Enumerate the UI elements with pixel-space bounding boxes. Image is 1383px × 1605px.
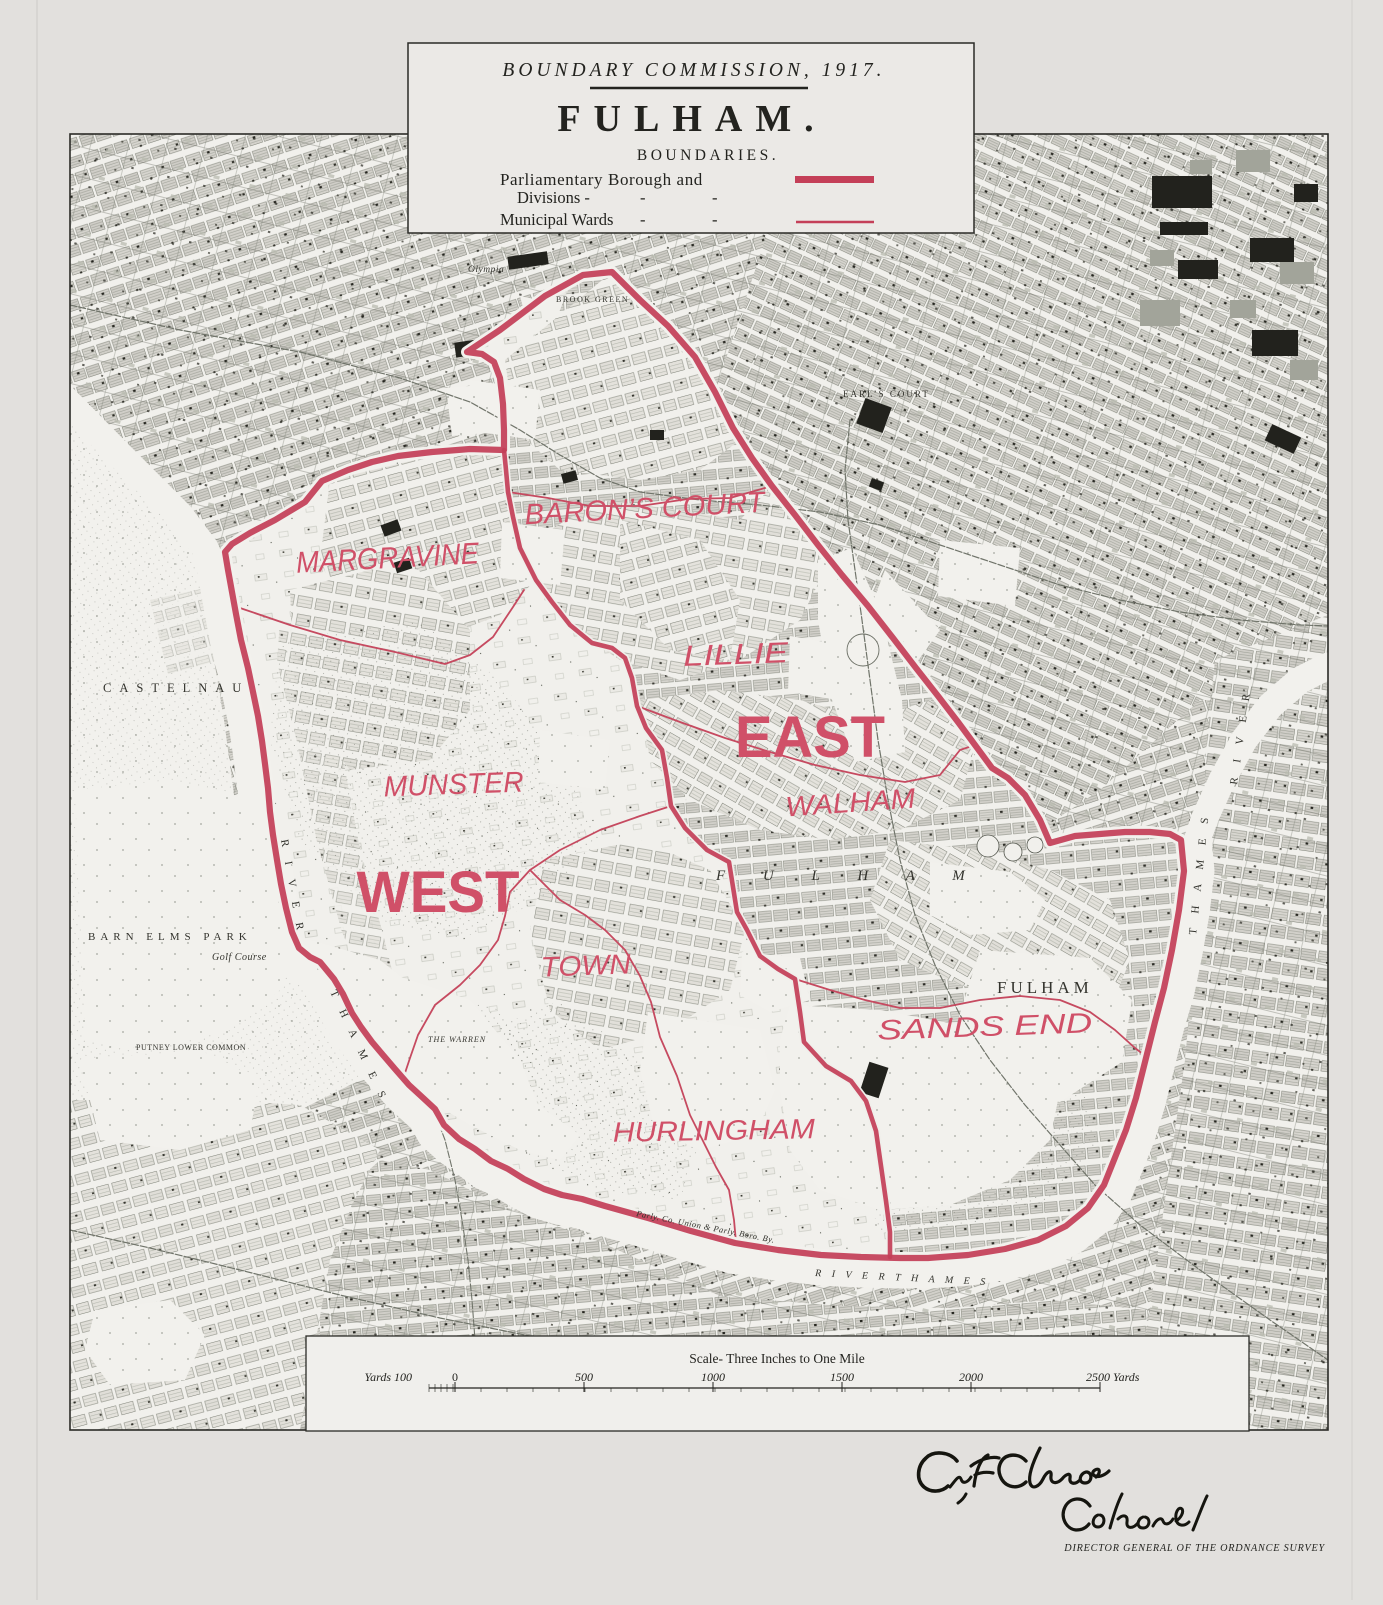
svg-text:BROOK GREEN: BROOK GREEN: [556, 295, 629, 304]
svg-text:BOUNDARY COMMISSION, 1917.: BOUNDARY COMMISSION, 1917.: [502, 60, 885, 81]
svg-text:Municipal Wards: Municipal Wards: [500, 210, 613, 229]
svg-text:DIRECTOR GENERAL OF THE ORDNAN: DIRECTOR GENERAL OF THE ORDNANCE SURVEY: [1063, 1543, 1325, 1554]
svg-text:EAST: EAST: [735, 705, 885, 770]
svg-text:0: 0: [452, 1370, 458, 1384]
svg-text:Yards 100: Yards 100: [365, 1370, 412, 1384]
svg-text:MUNSTER: MUNSTER: [383, 767, 524, 804]
svg-text:Scale- Three Inches to One Mil: Scale- Three Inches to One Mile: [689, 1351, 865, 1366]
svg-text:Olympia: Olympia: [468, 265, 504, 275]
svg-text:500: 500: [575, 1370, 593, 1384]
svg-text:F U L H A M: F U L H A M: [715, 868, 982, 884]
svg-text:BOUNDARIES.: BOUNDARIES.: [637, 147, 779, 164]
svg-text:-: -: [712, 188, 718, 207]
svg-text:BARN ELMS PARK: BARN ELMS PARK: [88, 931, 252, 943]
svg-text:THE WARREN: THE WARREN: [428, 1035, 486, 1044]
svg-text:FULHAM.: FULHAM.: [557, 98, 826, 140]
svg-text:2500 Yards: 2500 Yards: [1086, 1370, 1140, 1384]
svg-text:WEST: WEST: [357, 860, 520, 925]
svg-text:-: -: [712, 210, 718, 229]
svg-text:-: -: [640, 188, 646, 207]
svg-text:2000: 2000: [959, 1370, 983, 1384]
svg-text:CASTELNAU: CASTELNAU: [103, 681, 249, 695]
svg-text:1500: 1500: [830, 1370, 854, 1384]
svg-text:FULHAM: FULHAM: [997, 978, 1093, 997]
svg-text:-: -: [640, 210, 646, 229]
svg-text:Parliamentary Borough and: Parliamentary Borough and: [500, 170, 703, 189]
svg-text:HURLINGHAM: HURLINGHAM: [613, 1113, 816, 1148]
svg-text:EARL’S COURT: EARL’S COURT: [843, 389, 930, 399]
svg-text:Divisions -: Divisions -: [517, 188, 590, 207]
svg-text:LILLIE: LILLIE: [683, 637, 790, 673]
svg-text:TOWN: TOWN: [540, 948, 632, 982]
svg-text:1000: 1000: [701, 1370, 725, 1384]
svg-text:Golf Course: Golf Course: [212, 952, 267, 963]
svg-text:PUTNEY LOWER COMMON: PUTNEY LOWER COMMON: [136, 1043, 246, 1052]
